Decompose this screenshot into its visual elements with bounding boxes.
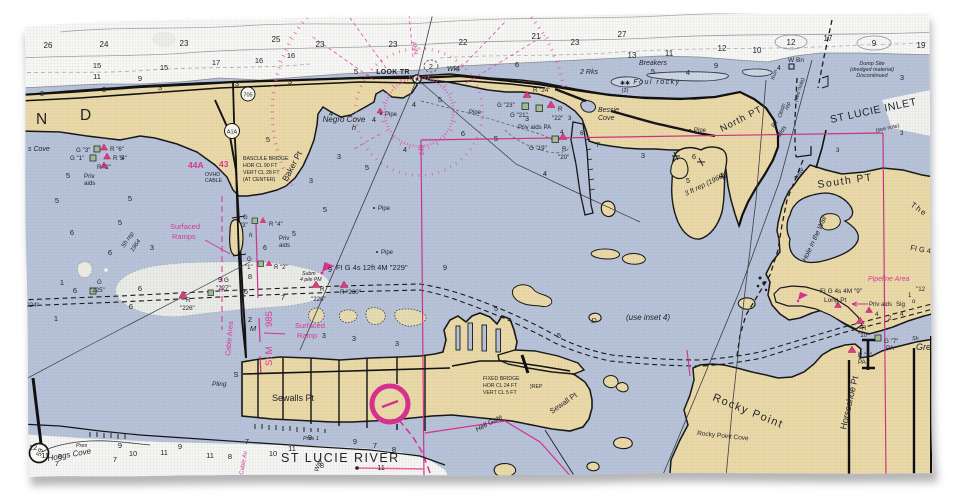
svg-text:M: M: [250, 324, 257, 333]
svg-text:16: 16: [255, 56, 263, 65]
svg-text:27: 27: [618, 30, 627, 39]
svg-text:9: 9: [328, 265, 332, 274]
svg-text:"20": "20": [558, 154, 569, 161]
svg-text:3: 3: [40, 89, 44, 98]
svg-text:3: 3: [322, 333, 326, 340]
svg-text:2: 2: [429, 64, 433, 71]
svg-text:Pipe: Pipe: [385, 112, 398, 118]
svg-text:13: 13: [628, 51, 637, 60]
svg-text:Priv: Priv: [84, 173, 96, 180]
svg-text:Sig: Sig: [896, 301, 906, 308]
svg-text:"227": "227": [216, 285, 231, 292]
svg-text:R "24": R "24": [533, 87, 550, 94]
svg-text:R: R: [862, 325, 867, 332]
svg-text:3: 3: [568, 115, 572, 122]
svg-text:✱✱: ✱✱: [620, 80, 630, 87]
svg-text:4: 4: [372, 115, 376, 124]
svg-text:15: 15: [160, 63, 168, 72]
svg-text:11: 11: [665, 49, 674, 58]
svg-text:9: 9: [353, 437, 357, 446]
svg-text:N: N: [36, 111, 49, 128]
svg-text:705: 705: [243, 93, 252, 99]
svg-text:aids: aids: [279, 243, 290, 249]
svg-text:Pres: Pres: [76, 443, 88, 449]
svg-text:10: 10: [753, 46, 762, 55]
svg-text:Priv aids: Priv aids: [869, 302, 892, 308]
svg-text:26: 26: [44, 41, 53, 50]
svg-text:2: 2: [248, 315, 252, 324]
svg-text:4 pile PM: 4 pile PM: [300, 277, 322, 283]
svg-text:5: 5: [494, 304, 498, 313]
svg-text:D: D: [591, 316, 597, 325]
svg-text:43: 43: [219, 159, 229, 169]
svg-text:6: 6: [692, 152, 696, 161]
svg-text:3: 3: [309, 176, 313, 185]
svg-text:6: 6: [515, 60, 519, 69]
svg-text:6: 6: [461, 129, 465, 138]
svg-text:Discontinued: Discontinued: [856, 73, 888, 79]
svg-text:3: 3: [641, 151, 645, 160]
svg-text:PA: PA: [886, 345, 895, 352]
svg-text:3: 3: [352, 334, 356, 343]
svg-text:Sh: Sh: [912, 336, 919, 342]
svg-text:9: 9: [714, 61, 718, 70]
svg-text:3: 3: [525, 114, 529, 123]
svg-text:6: 6: [70, 228, 74, 237]
svg-text:4: 4: [403, 145, 407, 154]
svg-text:W Bn: W Bn: [788, 57, 804, 64]
svg-text:10: 10: [129, 449, 137, 458]
svg-text:Gre: Gre: [916, 342, 931, 352]
svg-text:R "6": R "6": [858, 352, 872, 359]
svg-text:Sewalls Pt: Sewalls Pt: [272, 393, 315, 403]
svg-text:12: 12: [29, 443, 37, 452]
svg-text:21: 21: [532, 32, 541, 41]
svg-text:6: 6: [138, 284, 142, 293]
svg-text:Cove: Cove: [598, 115, 614, 122]
svg-text:G "23": G "23": [497, 102, 515, 109]
svg-text:6: 6: [263, 245, 267, 252]
svg-text:3: 3: [337, 152, 341, 161]
svg-text:22: 22: [459, 38, 468, 47]
svg-text:5: 5: [118, 218, 122, 227]
svg-text:Pipe: Pipe: [694, 128, 707, 134]
svg-text:5: 5: [557, 331, 561, 340]
svg-text:"226": "226": [180, 305, 195, 312]
svg-text:2: 2: [888, 315, 892, 322]
svg-text:G "7": G "7": [884, 338, 898, 345]
svg-text:3: 3: [900, 130, 904, 137]
svg-text:15: 15: [93, 61, 101, 70]
svg-text:5: 5: [494, 134, 498, 143]
svg-text:R: R: [186, 297, 191, 304]
svg-text:6: 6: [73, 286, 77, 295]
svg-text:23: 23: [571, 38, 580, 47]
svg-text:S: S: [233, 370, 238, 379]
svg-text:}REP: }REP: [530, 384, 543, 390]
svg-text:Wk: Wk: [447, 66, 458, 73]
svg-text:12: 12: [787, 38, 796, 47]
svg-text:4: 4: [875, 311, 879, 318]
svg-text:5: 5: [323, 205, 327, 214]
svg-text:7: 7: [596, 140, 600, 149]
svg-text:h: h: [352, 123, 356, 132]
svg-text:4: 4: [543, 169, 547, 178]
svg-text:Pipe: Pipe: [378, 206, 391, 212]
svg-text:240: 240: [420, 144, 426, 155]
svg-text:R "4": R "4": [269, 222, 283, 228]
svg-text:5: 5: [365, 163, 369, 172]
svg-text:9: 9: [218, 277, 222, 284]
svg-text:Pipe: Pipe: [469, 110, 482, 116]
svg-text:R: R: [562, 146, 567, 153]
svg-text:11: 11: [160, 448, 168, 457]
svg-text:G: G: [243, 215, 248, 221]
svg-text:7: 7: [281, 293, 285, 302]
svg-text:R: R: [320, 286, 325, 293]
svg-text:HOR CL 90 FT: HOR CL 90 FT: [243, 163, 278, 169]
svg-text:25: 25: [272, 35, 281, 44]
svg-text:23: 23: [180, 39, 189, 48]
svg-text:8: 8: [392, 445, 396, 454]
svg-text:R "2": R "2": [274, 265, 288, 271]
svg-text:4: 4: [560, 129, 564, 136]
svg-text:24: 24: [100, 40, 109, 49]
svg-text:"1": "1": [245, 265, 253, 271]
svg-text:4: 4: [329, 109, 333, 118]
svg-text:G "19": G "19": [529, 145, 547, 152]
svg-text:Priv aids PA: Priv aids PA: [518, 124, 552, 131]
svg-text:3: 3: [900, 73, 904, 82]
svg-text:8: 8: [320, 461, 324, 470]
svg-text:11: 11: [41, 451, 49, 460]
svg-text:19: 19: [917, 41, 926, 50]
svg-text:Bessie: Bessie: [598, 107, 619, 114]
svg-text:3: 3: [150, 243, 154, 252]
svg-text:6: 6: [244, 287, 248, 296]
svg-text:3: 3: [288, 77, 292, 86]
svg-text:Breakers: Breakers: [639, 60, 668, 67]
svg-text:5: 5: [66, 171, 70, 180]
svg-text:4: 4: [777, 65, 781, 72]
svg-text:Pipe: Pipe: [381, 250, 394, 256]
svg-text:(AT CENTER): (AT CENTER): [243, 177, 276, 183]
svg-text:9: 9: [308, 433, 312, 442]
svg-text:16: 16: [287, 51, 295, 60]
svg-text:FIXED BRIDGE: FIXED BRIDGE: [483, 376, 520, 382]
svg-text:7: 7: [55, 459, 59, 468]
svg-text:5: 5: [686, 176, 690, 185]
svg-text:D: D: [80, 107, 91, 124]
svg-text:6: 6: [580, 130, 584, 137]
svg-text:3: 3: [395, 339, 399, 348]
svg-text:G: G: [247, 257, 252, 263]
svg-text:St M: St M: [264, 346, 275, 366]
svg-text:G: G: [97, 279, 102, 286]
svg-text:3: 3: [102, 85, 106, 94]
svg-text:1: 1: [908, 292, 912, 299]
svg-text:23: 23: [389, 40, 398, 49]
svg-text:FI G 4s 12ft 4M "229": FI G 4s 12ft 4M "229": [336, 263, 408, 272]
svg-text:Foul rocky: Foul rocky: [633, 79, 680, 86]
svg-text:9: 9: [118, 441, 122, 450]
svg-text:5: 5: [266, 135, 270, 144]
svg-text:(2): (2): [622, 88, 629, 94]
svg-text:"228": "228": [311, 296, 326, 303]
svg-text:9: 9: [443, 263, 447, 272]
svg-text:9: 9: [138, 74, 142, 83]
svg-text:"12: "12: [916, 286, 926, 293]
svg-text:R "230": R "230": [340, 289, 361, 296]
svg-text:1: 1: [54, 314, 58, 323]
svg-text:6: 6: [108, 248, 112, 257]
svg-text:3: 3: [836, 147, 840, 154]
svg-text:3: 3: [235, 79, 239, 88]
svg-text:10: 10: [269, 449, 277, 458]
svg-text:G: G: [224, 277, 229, 284]
svg-text:11: 11: [288, 444, 296, 453]
svg-text:7: 7: [373, 441, 377, 450]
svg-text:Priv: Priv: [279, 236, 289, 242]
svg-text:(use inset 4): (use inset 4): [626, 313, 670, 322]
svg-text:Pipeline Area: Pipeline Area: [868, 276, 909, 283]
svg-text:4: 4: [686, 68, 690, 77]
svg-text:Surfaced: Surfaced: [295, 321, 325, 330]
svg-text:5: 5: [292, 231, 296, 238]
svg-text:4: 4: [900, 311, 904, 318]
svg-text:PA: PA: [858, 359, 867, 366]
svg-text:8: 8: [248, 272, 252, 281]
svg-text:11: 11: [206, 451, 214, 460]
svg-text:Ramp: Ramp: [297, 331, 317, 340]
svg-text:BASCULE BRIDGE: BASCULE BRIDGE: [243, 156, 289, 162]
svg-text:"225": "225": [90, 287, 105, 294]
svg-text:985: 985: [264, 311, 275, 327]
svg-text:44A: 44A: [188, 160, 204, 170]
svg-text:9: 9: [872, 39, 877, 48]
svg-text:aids: aids: [84, 180, 95, 187]
svg-text:11: 11: [377, 463, 385, 472]
svg-text:5: 5: [354, 67, 358, 76]
svg-text:7: 7: [245, 437, 249, 446]
svg-text:5: 5: [438, 95, 442, 104]
svg-text:"22": "22": [552, 115, 563, 122]
svg-text:4: 4: [412, 100, 416, 109]
svg-text:6: 6: [129, 302, 133, 311]
svg-text:7: 7: [113, 455, 117, 464]
svg-text:FI G 4s 4M "9": FI G 4s 4M "9": [820, 288, 863, 295]
svg-text:5: 5: [120, 155, 124, 162]
svg-text:17: 17: [824, 34, 833, 43]
svg-text:11: 11: [93, 72, 101, 81]
svg-text:12: 12: [718, 44, 727, 53]
svg-text:CABLE: CABLE: [205, 178, 223, 184]
svg-text:Pling: Pling: [212, 381, 227, 388]
svg-text:8: 8: [228, 452, 232, 461]
svg-text:HOR CL 24 FT: HOR CL 24 FT: [483, 383, 518, 389]
svg-text:"10": "10": [858, 332, 869, 339]
svg-text:G "3": G "3": [76, 147, 90, 154]
svg-text:Ramps: Ramps: [172, 232, 196, 241]
svg-text:G "1": G "1": [70, 155, 84, 162]
svg-text:R "6": R "6": [110, 146, 124, 153]
svg-text:R: R: [558, 106, 563, 113]
svg-text:3: 3: [158, 83, 162, 92]
svg-text:1: 1: [60, 278, 64, 287]
svg-text:VERT CL 5 FT: VERT CL 5 FT: [483, 390, 517, 396]
svg-text:Surfaced: Surfaced: [170, 222, 200, 231]
svg-text:R "2": R "2": [97, 164, 111, 171]
svg-text:"3": "3": [240, 223, 248, 229]
svg-text:LOOK TR: LOOK TR: [376, 69, 410, 76]
svg-text:A1A: A1A: [227, 130, 238, 136]
svg-text:9: 9: [178, 442, 182, 451]
svg-text:17: 17: [212, 58, 220, 67]
svg-text:5: 5: [651, 67, 655, 76]
svg-text:s Cove: s Cove: [28, 146, 50, 153]
svg-text:5: 5: [128, 194, 132, 203]
svg-text:23: 23: [316, 40, 325, 49]
svg-text:Long Pt: Long Pt: [824, 297, 847, 304]
svg-text:5: 5: [55, 196, 59, 205]
svg-text:VERT CL 28 FT: VERT CL 28 FT: [243, 170, 280, 176]
svg-text:2 Rks: 2 Rks: [579, 69, 598, 76]
svg-text:o: o: [912, 298, 916, 305]
